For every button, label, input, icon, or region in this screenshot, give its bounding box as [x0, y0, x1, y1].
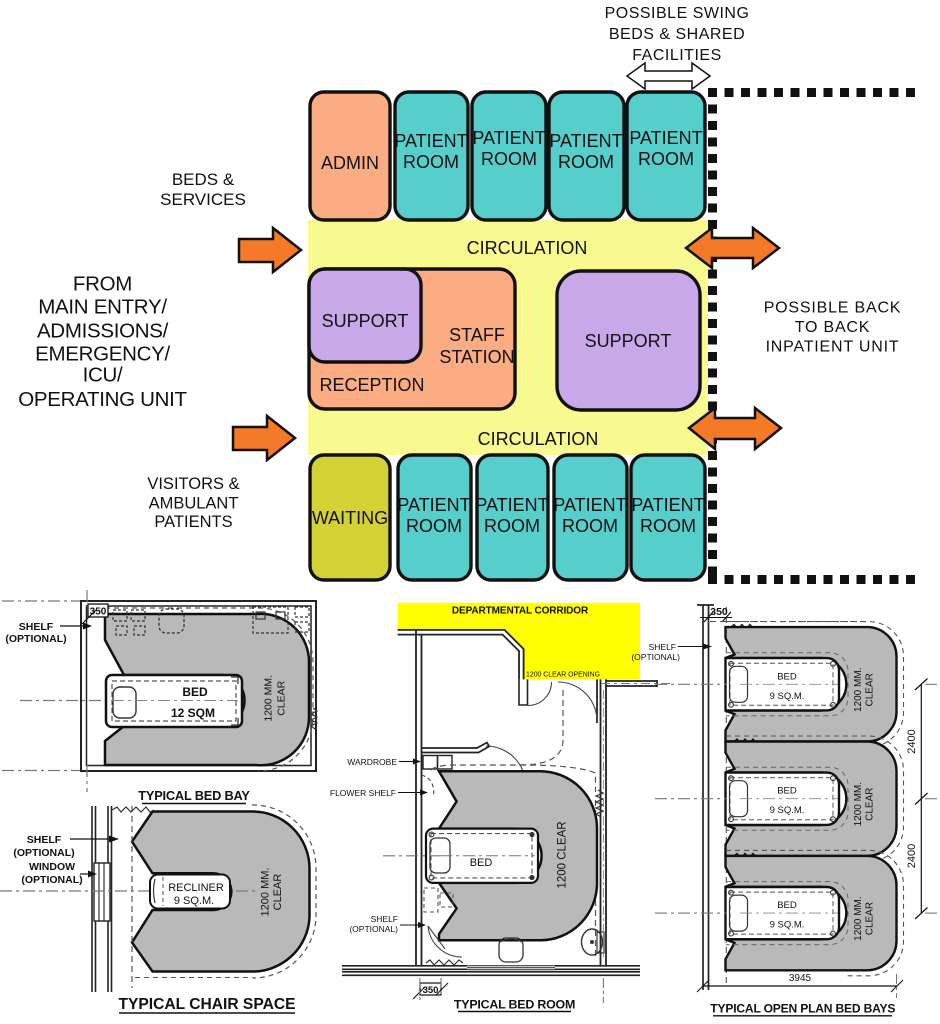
- svg-text:STAFF: STAFF: [449, 325, 505, 345]
- svg-text:1200 MM.CLEAR: 1200 MM.CLEAR: [853, 668, 876, 712]
- svg-text:FLOWER SHELF: FLOWER SHELF: [330, 788, 396, 798]
- svg-text:ROOM: ROOM: [403, 152, 459, 172]
- svg-text:BED: BED: [777, 786, 797, 797]
- svg-text:1200 MM.CLEAR: 1200 MM.CLEAR: [263, 675, 288, 722]
- svg-text:PATIENT: PATIENT: [631, 495, 704, 515]
- svg-text:FACILITIES: FACILITIES: [632, 47, 721, 64]
- svg-text:1200 MM.CLEAR: 1200 MM.CLEAR: [853, 896, 876, 940]
- svg-text:PATIENTS: PATIENTS: [154, 513, 232, 531]
- svg-text:PATIENT: PATIENT: [629, 128, 702, 148]
- svg-text:PATIENT: PATIENT: [472, 128, 545, 148]
- svg-text:VISITORS &: VISITORS &: [147, 475, 239, 493]
- svg-text:ROOM: ROOM: [640, 516, 696, 536]
- svg-text:ROOM: ROOM: [558, 152, 614, 172]
- svg-text:EMERGENCY/: EMERGENCY/: [35, 343, 170, 366]
- svg-text:ADMISSIONS/: ADMISSIONS/: [37, 320, 169, 343]
- svg-text:ROOM: ROOM: [638, 149, 694, 169]
- svg-text:TO BACK: TO BACK: [795, 319, 871, 336]
- svg-text:SHELF: SHELF: [19, 621, 54, 633]
- svg-text:1200 MM.CLEAR: 1200 MM.CLEAR: [259, 868, 284, 917]
- svg-text:(OPTIONAL): (OPTIONAL): [631, 652, 680, 662]
- svg-text:PATIENT: PATIENT: [397, 495, 470, 515]
- svg-text:STATION: STATION: [439, 347, 514, 367]
- svg-text:PATIENT: PATIENT: [549, 131, 622, 151]
- svg-text:SUPPORT: SUPPORT: [585, 331, 672, 351]
- svg-text:2400: 2400: [906, 729, 918, 753]
- svg-text:ROOM: ROOM: [481, 149, 537, 169]
- svg-text:PATIENT: PATIENT: [394, 131, 467, 151]
- svg-text:9 SQ.M.: 9 SQ.M.: [770, 920, 805, 931]
- svg-text:CIRCULATION: CIRCULATION: [467, 238, 588, 258]
- svg-text:OPERATING UNIT: OPERATING UNIT: [18, 388, 187, 411]
- svg-text:AMBULANT: AMBULANT: [149, 495, 239, 513]
- svg-text:FROM: FROM: [73, 273, 132, 296]
- svg-text:1200 CLEAR: 1200 CLEAR: [557, 821, 569, 888]
- svg-text:DEPARTMENTAL CORRIDOR: DEPARTMENTAL CORRIDOR: [452, 606, 589, 617]
- svg-text:3945: 3945: [789, 973, 812, 984]
- svg-text:350: 350: [90, 607, 107, 618]
- svg-text:ROOM: ROOM: [484, 516, 540, 536]
- svg-text:TYPICAL OPEN PLAN BED BAYS: TYPICAL OPEN PLAN BED BAYS: [710, 1002, 895, 1016]
- svg-text:BED: BED: [777, 900, 797, 911]
- svg-text:(OPTIONAL): (OPTIONAL): [13, 847, 74, 859]
- svg-text:RECEPTION: RECEPTION: [319, 375, 424, 395]
- svg-text:SUPPORT: SUPPORT: [322, 311, 409, 331]
- svg-text:TYPICAL CHAIR SPACE: TYPICAL CHAIR SPACE: [118, 996, 295, 1013]
- svg-text:WARDROBE: WARDROBE: [347, 757, 397, 767]
- svg-text:1200 MM.CLEAR: 1200 MM.CLEAR: [853, 782, 876, 826]
- svg-text:BED: BED: [777, 671, 797, 682]
- svg-text:WINDOW: WINDOW: [29, 861, 75, 873]
- svg-text:2400: 2400: [906, 844, 918, 868]
- svg-text:BEDS & SHARED: BEDS & SHARED: [609, 26, 745, 43]
- svg-text:(OPTIONAL): (OPTIONAL): [349, 924, 398, 934]
- svg-text:MAIN ENTRY/: MAIN ENTRY/: [38, 296, 167, 319]
- svg-text:TYPICAL BED BAY: TYPICAL BED BAY: [138, 788, 250, 803]
- svg-text:ROOM: ROOM: [562, 516, 618, 536]
- svg-text:ADMIN: ADMIN: [321, 153, 379, 173]
- svg-text:RECLINER: RECLINER: [168, 882, 224, 894]
- svg-text:POSSIBLE SWING: POSSIBLE SWING: [605, 5, 750, 22]
- svg-text:SHELF: SHELF: [27, 834, 62, 846]
- svg-text:PATIENT: PATIENT: [553, 495, 626, 515]
- svg-text:12 SQM: 12 SQM: [171, 706, 215, 720]
- svg-text:BEDS &: BEDS &: [172, 170, 235, 189]
- svg-text:ROOM: ROOM: [406, 516, 462, 536]
- svg-text:9 SQ.M.: 9 SQ.M.: [770, 691, 805, 702]
- svg-text:9 SQ.M.: 9 SQ.M.: [770, 805, 805, 816]
- svg-text:1200 CLEAR OPENING: 1200 CLEAR OPENING: [526, 672, 600, 679]
- svg-text:SHELF: SHELF: [649, 642, 676, 652]
- svg-text:WAITING: WAITING: [312, 508, 388, 528]
- svg-text:(OPTIONAL): (OPTIONAL): [5, 633, 66, 645]
- svg-text:BED: BED: [182, 685, 208, 699]
- svg-text:CIRCULATION: CIRCULATION: [478, 429, 599, 449]
- svg-text:SERVICES: SERVICES: [160, 190, 246, 209]
- svg-text:BED: BED: [470, 857, 493, 869]
- svg-text:PATIENT: PATIENT: [475, 495, 548, 515]
- svg-text:POSSIBLE BACK: POSSIBLE BACK: [764, 300, 902, 317]
- svg-text:ICU/: ICU/: [83, 364, 123, 387]
- svg-text:TYPICAL BED ROOM: TYPICAL BED ROOM: [454, 998, 575, 1012]
- svg-text:INPATIENT UNIT: INPATIENT UNIT: [766, 339, 900, 356]
- svg-text:SHELF: SHELF: [371, 914, 398, 924]
- svg-text:(OPTIONAL): (OPTIONAL): [21, 874, 82, 886]
- svg-text:9 SQ.M.: 9 SQ.M.: [174, 895, 214, 907]
